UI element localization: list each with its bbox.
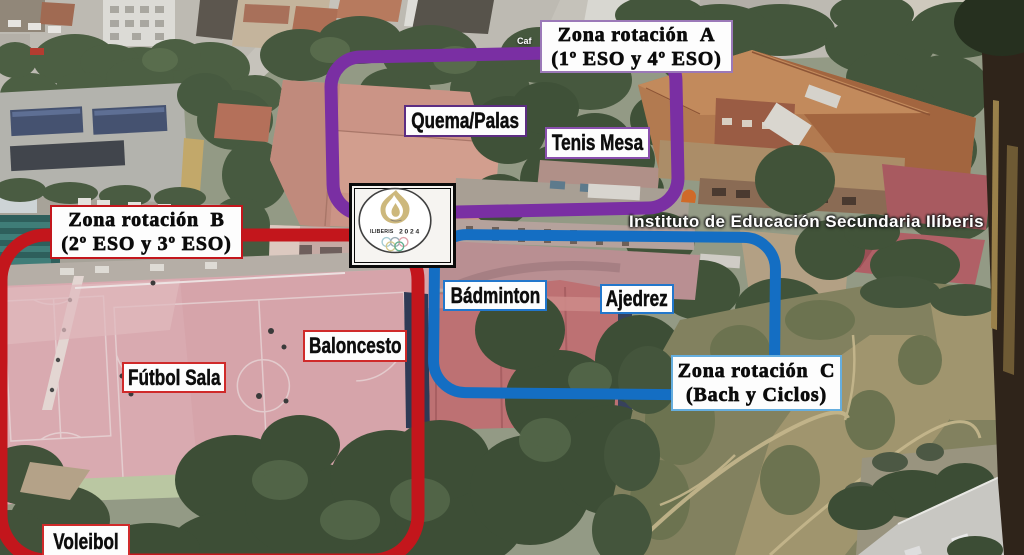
svg-text:2024: 2024: [399, 229, 421, 236]
svg-text:ILIBERIS: ILIBERIS: [370, 229, 394, 235]
